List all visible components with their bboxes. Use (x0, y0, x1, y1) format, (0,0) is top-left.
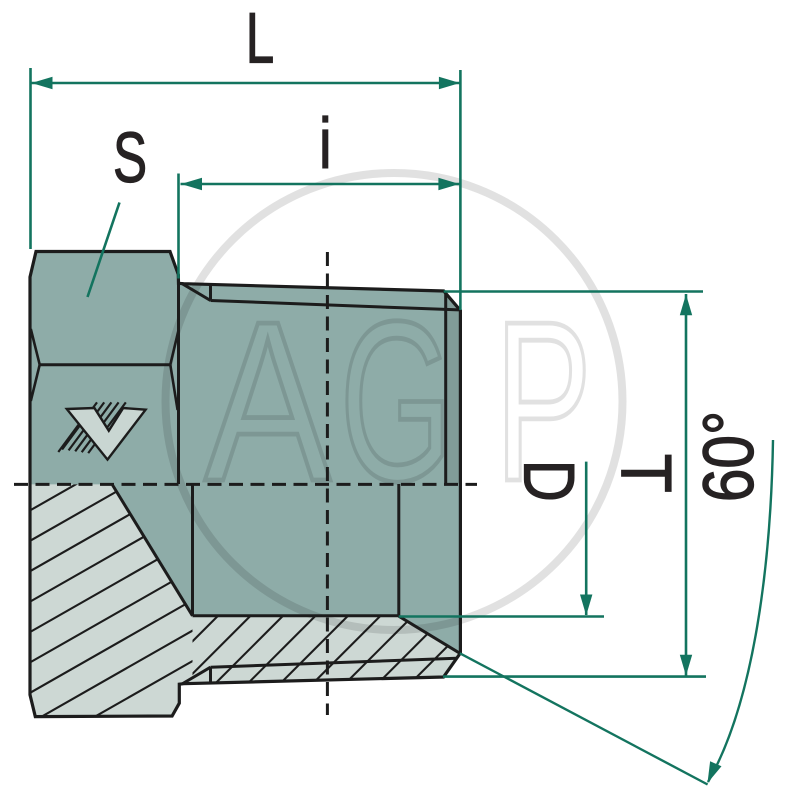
svg-text:G: G (340, 274, 454, 529)
svg-text:60°: 60° (688, 411, 768, 502)
svg-text:D: D (509, 460, 589, 502)
svg-text:i: i (319, 104, 332, 184)
svg-text:T: T (606, 454, 685, 493)
svg-text:S: S (113, 119, 147, 198)
svg-text:A: A (205, 274, 331, 529)
svg-text:L: L (246, 0, 274, 79)
